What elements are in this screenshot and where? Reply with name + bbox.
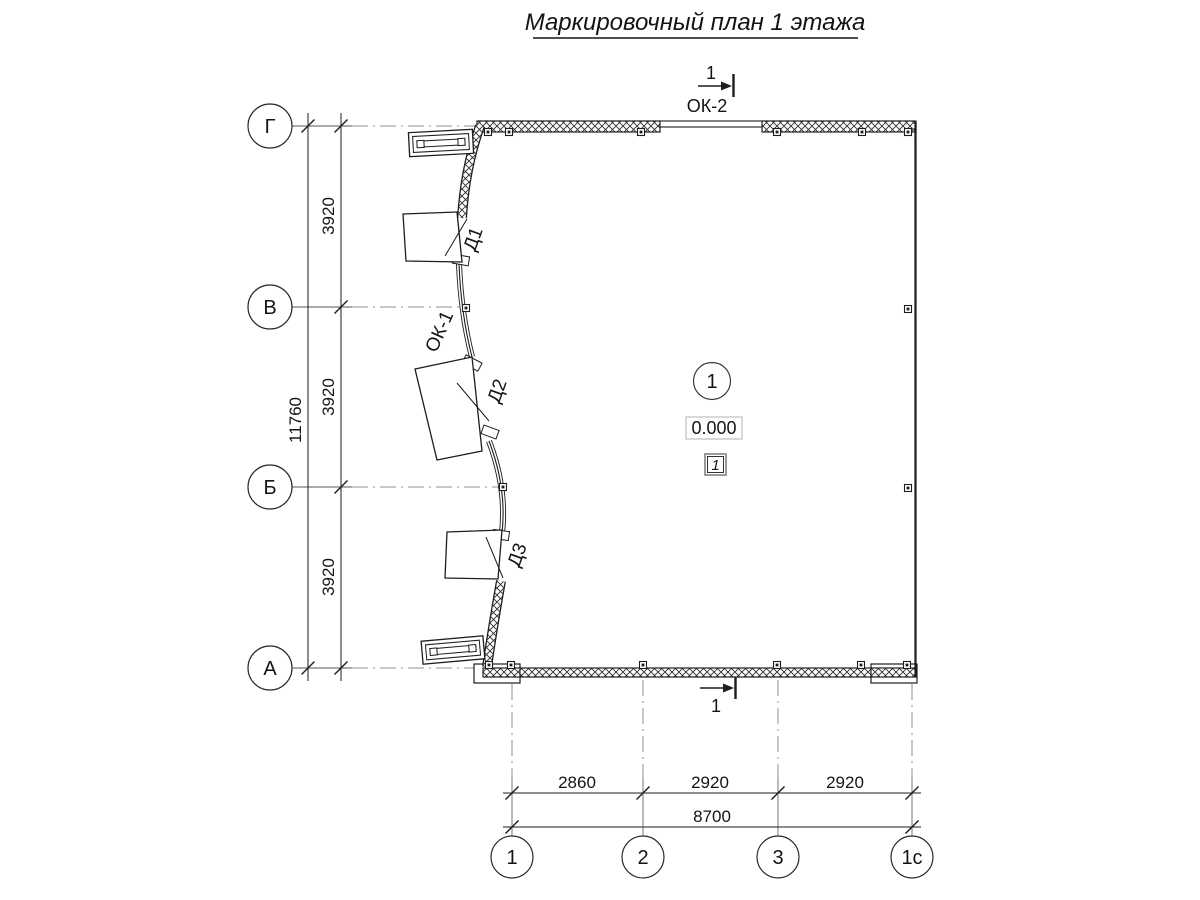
axis-label-a: А <box>263 658 277 680</box>
elevation-value: 0.000 <box>691 418 736 438</box>
axis-bubbles-bottom: 1 2 3 1с <box>491 836 933 878</box>
dim-2860: 2860 <box>558 773 596 792</box>
room-markers: 1 0.000 1 <box>686 363 742 476</box>
wall-top-left-segment <box>477 121 660 132</box>
wall-top-right-segment <box>762 121 916 132</box>
axis-label-1c: 1с <box>901 847 922 869</box>
section-number-bottom: 1 <box>711 696 721 716</box>
section-mark-bottom: 1 <box>700 677 736 716</box>
drawing-sheet: 3920 3920 3920 11760 2860 2920 2920 8700 <box>0 0 1200 900</box>
window-assembly-bottom-left <box>421 636 485 664</box>
dim-8700: 8700 <box>693 807 731 826</box>
door-d1-label: Д1 <box>460 225 488 254</box>
axis-lines <box>292 126 912 836</box>
floor-type-value: 1 <box>711 457 719 474</box>
axis-label-v: В <box>263 297 276 319</box>
page-title: Маркировочный план 1 этажа <box>525 9 866 36</box>
room-number: 1 <box>706 371 717 393</box>
door-d1-leaf <box>403 212 462 262</box>
dim-11760: 11760 <box>286 397 305 443</box>
section-arrow-top <box>721 82 732 91</box>
window-ok2-label: ОК-2 <box>687 96 728 116</box>
dim-3920-mid: 3920 <box>319 378 338 416</box>
axis-label-g: Г <box>265 116 276 138</box>
dim-2920-b: 2920 <box>826 773 864 792</box>
door-d2 <box>415 357 489 460</box>
building-plan <box>403 121 917 683</box>
door-d3-label: Д3 <box>504 541 532 570</box>
axis-label-3: 3 <box>772 847 783 869</box>
window-ok1-label: ОК-1 <box>422 308 459 356</box>
axis-label-1: 1 <box>506 847 517 869</box>
door-d1 <box>403 212 467 262</box>
door-d2-leaf <box>415 357 482 460</box>
dim-3920-bot: 3920 <box>319 558 338 596</box>
axis-label-b: Б <box>263 477 276 499</box>
dim-3920-top: 3920 <box>319 197 338 235</box>
section-arrow-bottom <box>723 684 734 693</box>
wall-curved-bottom <box>487 581 501 667</box>
floor-plan-canvas: 3920 3920 3920 11760 2860 2920 2920 8700 <box>0 0 1200 900</box>
door-d3 <box>445 530 503 579</box>
door-d2-label: Д2 <box>484 377 512 406</box>
window-ok2-opening <box>660 121 762 127</box>
drawing-title-block: Маркировочный план 1 этажа <box>525 9 866 38</box>
section-number-top: 1 <box>706 63 716 83</box>
dim-2920-a: 2920 <box>691 773 729 792</box>
dimension-ticks <box>302 120 919 834</box>
window-assembly-top-left <box>408 129 473 156</box>
wall-markers <box>463 129 912 669</box>
dimension-texts: 3920 3920 3920 11760 2860 2920 2920 8700 <box>286 197 864 826</box>
dimension-lines <box>308 113 921 827</box>
wall-bottom <box>483 668 916 677</box>
section-mark-top: 1 ОК-2 <box>687 63 734 116</box>
axis-label-2: 2 <box>637 847 648 869</box>
